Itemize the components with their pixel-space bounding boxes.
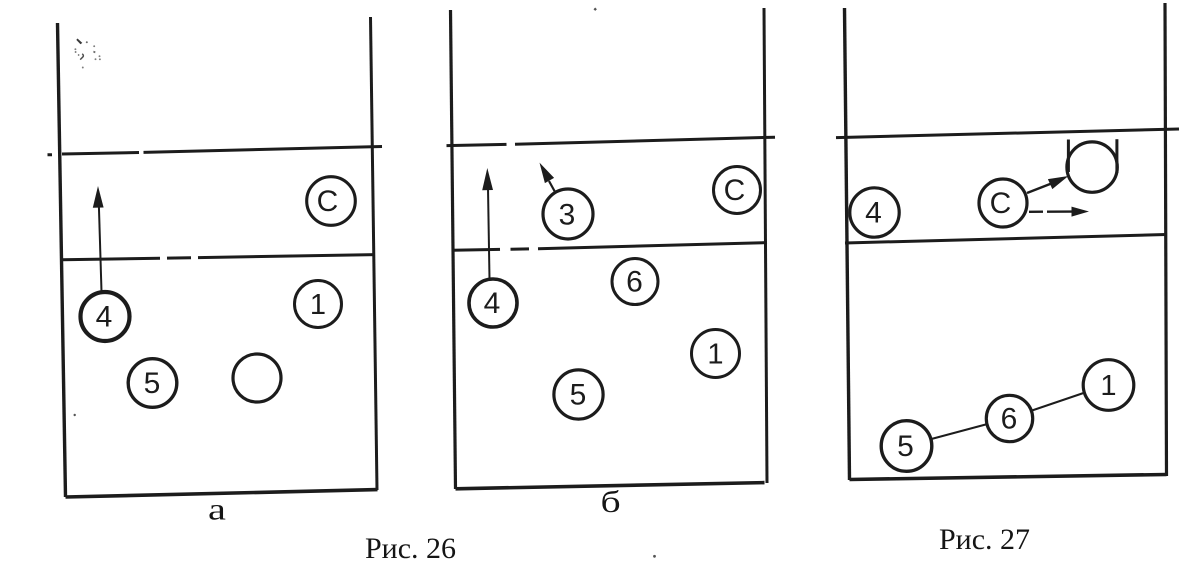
svg-text:3: 3 xyxy=(559,199,576,232)
svg-text:4: 4 xyxy=(865,197,882,230)
svg-text:4: 4 xyxy=(96,301,113,334)
svg-text:Рис. 27: Рис. 27 xyxy=(939,523,1030,556)
svg-text:5: 5 xyxy=(570,379,587,412)
svg-text:б: б xyxy=(601,484,621,519)
svg-text:6: 6 xyxy=(1001,403,1018,436)
svg-text:6: 6 xyxy=(626,266,643,299)
svg-text:1: 1 xyxy=(1100,370,1116,402)
svg-text:5: 5 xyxy=(897,430,914,463)
svg-text:C: C xyxy=(990,187,1012,220)
svg-text:4: 4 xyxy=(484,287,501,320)
svg-text:5: 5 xyxy=(144,367,161,400)
svg-text:1: 1 xyxy=(707,339,723,371)
svg-text:Рис. 26: Рис. 26 xyxy=(365,532,456,565)
svg-text:1: 1 xyxy=(310,289,326,321)
svg-text:C: C xyxy=(724,174,746,207)
svg-text:а: а xyxy=(208,492,226,526)
svg-text:C: C xyxy=(317,185,339,218)
